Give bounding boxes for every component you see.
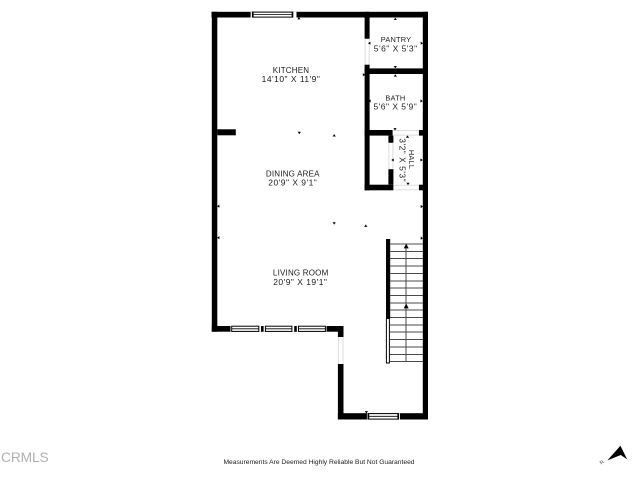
svg-text:14'10" X 11'9": 14'10" X 11'9" (262, 74, 321, 84)
svg-text:20'9" X 9'1": 20'9" X 9'1" (268, 178, 317, 188)
svg-text:5'6" X 5'3": 5'6" X 5'3" (374, 44, 418, 54)
svg-text:Measurements Are Deemed Highly: Measurements Are Deemed Highly Reliable … (223, 459, 414, 466)
svg-text:20'9" X 19'1": 20'9" X 19'1" (273, 277, 327, 287)
svg-text:CRMLS: CRMLS (1, 450, 49, 465)
svg-text:3'2" X 5'3": 3'2" X 5'3" (398, 138, 408, 182)
svg-text:5'6" X 5'9": 5'6" X 5'9" (373, 102, 417, 112)
